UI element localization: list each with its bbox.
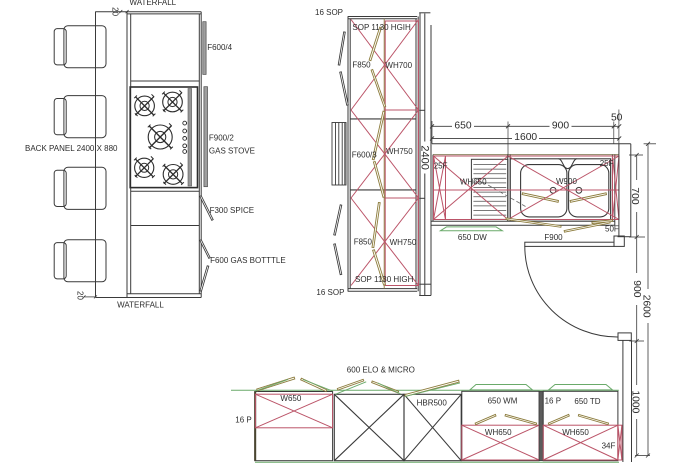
svg-text:16 SOP: 16 SOP [315, 8, 343, 17]
svg-text:650: 650 [454, 120, 471, 131]
svg-text:650 TD: 650 TD [574, 397, 600, 406]
svg-text:F600 GAS BOTTTLE: F600 GAS BOTTTLE [210, 256, 286, 265]
svg-text:WATERFALL: WATERFALL [117, 301, 164, 310]
svg-text:650 WM: 650 WM [488, 396, 518, 405]
svg-text:50F: 50F [605, 224, 619, 233]
svg-text:F900: F900 [544, 233, 563, 242]
svg-text:F600/4: F600/4 [207, 43, 232, 52]
svg-text:650 DW: 650 DW [458, 233, 487, 242]
svg-text:SOP 1130 HIGH: SOP 1130 HIGH [355, 275, 414, 284]
svg-text:16 P: 16 P [545, 396, 561, 405]
svg-text:2600: 2600 [641, 295, 652, 318]
svg-text:F300 SPICE: F300 SPICE [210, 206, 254, 215]
svg-text:25F: 25F [600, 159, 614, 168]
svg-text:16 SOP: 16 SOP [316, 288, 344, 297]
svg-text:2400: 2400 [419, 145, 431, 169]
svg-text:W900: W900 [556, 177, 577, 186]
svg-text:WH650: WH650 [485, 428, 512, 437]
svg-text:700: 700 [629, 187, 640, 204]
svg-text:50: 50 [611, 113, 623, 124]
svg-text:WATERFALL: WATERFALL [129, 0, 176, 7]
svg-text:16 P: 16 P [235, 415, 251, 424]
svg-text:WH700: WH700 [385, 61, 412, 70]
svg-text:WH750: WH750 [386, 147, 413, 156]
svg-text:1600: 1600 [514, 132, 537, 143]
svg-text:20: 20 [76, 291, 85, 300]
svg-text:34F: 34F [602, 441, 616, 450]
svg-text:1000: 1000 [630, 390, 641, 413]
svg-text:HBR500: HBR500 [417, 399, 448, 408]
svg-text:F850: F850 [352, 61, 371, 70]
svg-text:900: 900 [552, 120, 569, 131]
svg-text:BACK PANEL 2400 X 880: BACK PANEL 2400 X 880 [25, 144, 118, 153]
svg-text:WH650: WH650 [562, 428, 589, 437]
svg-text:WH750: WH750 [390, 238, 417, 247]
svg-text:F600/3: F600/3 [352, 150, 377, 159]
svg-text:20: 20 [110, 7, 119, 16]
svg-text:25F: 25F [434, 161, 448, 170]
svg-text:GAS STOVE: GAS STOVE [209, 146, 255, 155]
svg-text:W650: W650 [280, 394, 301, 403]
svg-text:900: 900 [631, 280, 642, 297]
svg-text:F850: F850 [354, 238, 373, 247]
svg-text:600 ELO & MICRO: 600 ELO & MICRO [347, 365, 415, 374]
svg-text:SOP 1130 HGIH: SOP 1130 HGIH [352, 23, 411, 32]
svg-text:WH650: WH650 [460, 178, 487, 187]
svg-text:F900/2: F900/2 [209, 134, 234, 143]
